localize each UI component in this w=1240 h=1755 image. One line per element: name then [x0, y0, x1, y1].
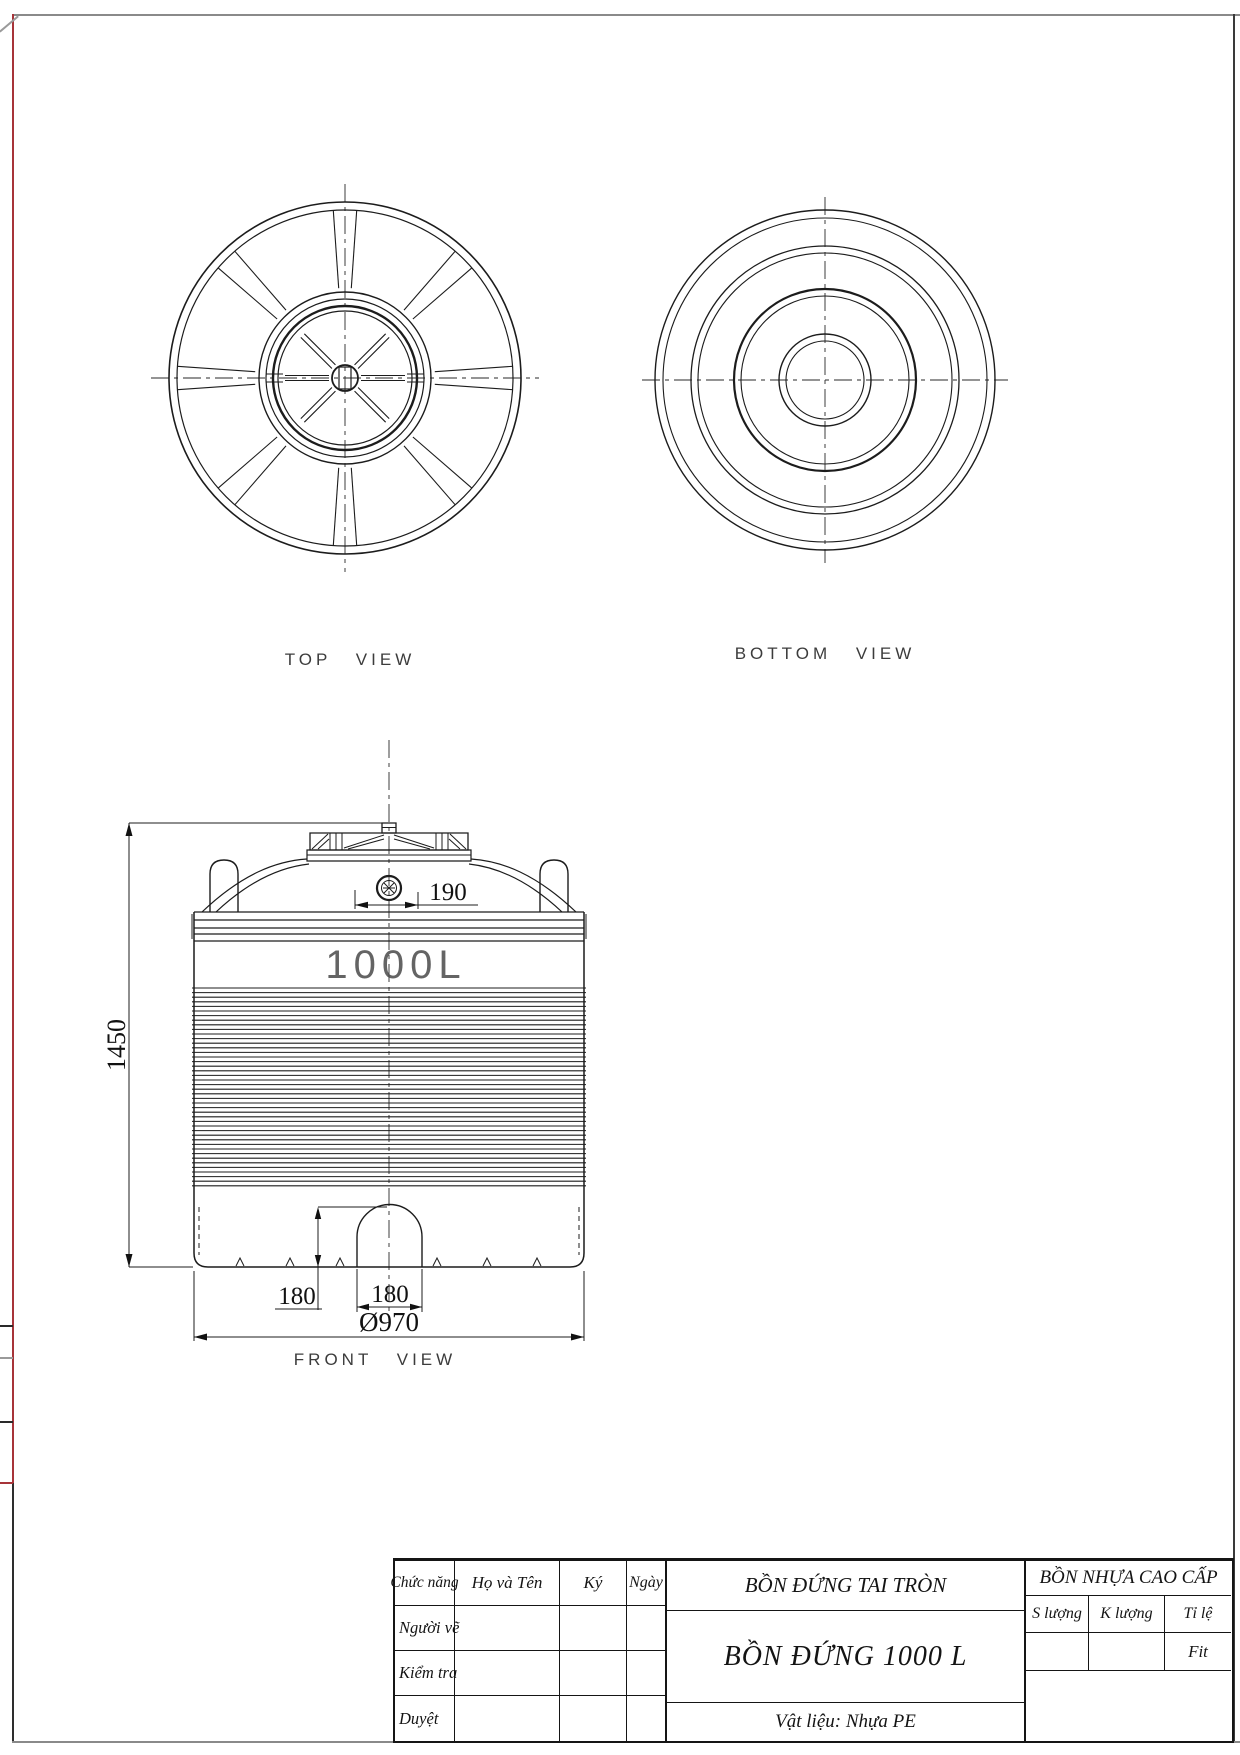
scale-label-cell: Tỉ lệ: [1165, 1596, 1231, 1633]
title-block-col-name: Họ và Tên: [455, 1561, 560, 1606]
approver-date-cell: [627, 1696, 667, 1741]
notes-cell: [1026, 1671, 1231, 1741]
frame-fold-tick-4: [0, 1482, 13, 1484]
title-block-row-drafter: Người vẽ: [395, 1606, 455, 1651]
top-view-label: TOP VIEW: [250, 650, 450, 670]
dim-190: 190: [355, 879, 478, 909]
tank-foot-ticks: [236, 1258, 541, 1266]
weight-value-cell: [1089, 1633, 1165, 1671]
scale-value-cell: Fit: [1165, 1633, 1231, 1671]
frame-left-border-black: [12, 1483, 14, 1743]
title-block-col-date: Ngày: [627, 1561, 667, 1606]
front-view-drawing: 1450: [90, 720, 650, 1370]
frame-top-border: [13, 14, 1240, 16]
approver-sign-cell: [560, 1696, 627, 1741]
top-view-drawing: [145, 168, 545, 578]
bottom-view-centerlines: [642, 197, 1008, 563]
title-block-col-role: Chức năng: [395, 1561, 455, 1606]
drain-arch: [357, 1205, 422, 1268]
top-view-centerlines: [151, 184, 539, 572]
frame-corner-diagonal-mark: [0, 16, 19, 33]
drafter-name-cell: [455, 1606, 560, 1651]
material-cell: Vật liệu: Nhựa PE: [667, 1703, 1026, 1741]
dim-190-text: 190: [429, 879, 467, 906]
frame-fold-tick-2: [0, 1357, 13, 1359]
drawing-sheet: TOP VIEW BOTTOM VIEW: [0, 0, 1240, 1755]
dim-180h-text: 180: [371, 1281, 409, 1308]
frame-fold-tick-3: [0, 1421, 13, 1423]
dim-1450-text: 1450: [102, 1019, 131, 1071]
frame-left-border-red: [12, 14, 14, 1483]
frame-right-border: [1233, 14, 1235, 1743]
bottom-view-label: BOTTOM VIEW: [725, 644, 925, 664]
product-type-cell: BỒN ĐỨNG TAI TRÒN: [667, 1561, 1026, 1611]
drafter-date-cell: [627, 1606, 667, 1651]
dim-970-text: Ø970: [359, 1307, 419, 1337]
qty-label-cell: S lượng: [1026, 1596, 1089, 1633]
product-title-cell: BỒN ĐỨNG 1000 L: [667, 1611, 1026, 1703]
approver-name-cell: [455, 1696, 560, 1741]
title-block-row-approver: Duyệt: [395, 1696, 455, 1741]
company-cell: BỒN NHỰA CAO CẤP: [1026, 1561, 1231, 1596]
capacity-label: 1000L: [325, 943, 466, 987]
title-block-col-sign: Ký: [560, 1561, 627, 1606]
drafter-sign-cell: [560, 1606, 627, 1651]
front-view-label: FRONT VIEW: [275, 1350, 475, 1370]
title-block: Chức năng Họ và Tên Ký Ngày Người vẽ Kiể…: [393, 1558, 1234, 1743]
checker-name-cell: [455, 1651, 560, 1696]
frame-fold-tick-1: [0, 1325, 13, 1327]
title-block-row-checker: Kiểm tra: [395, 1651, 455, 1696]
dim-180-vertical: 180: [275, 1207, 387, 1310]
qty-value-cell: [1026, 1633, 1089, 1671]
dim-180-horizontal: 180: [357, 1269, 422, 1312]
checker-sign-cell: [560, 1651, 627, 1696]
checker-date-cell: [627, 1651, 667, 1696]
dim-180v-text: 180: [278, 1283, 316, 1310]
weight-label-cell: K lượng: [1089, 1596, 1165, 1633]
bottom-view-drawing: [640, 195, 1010, 565]
